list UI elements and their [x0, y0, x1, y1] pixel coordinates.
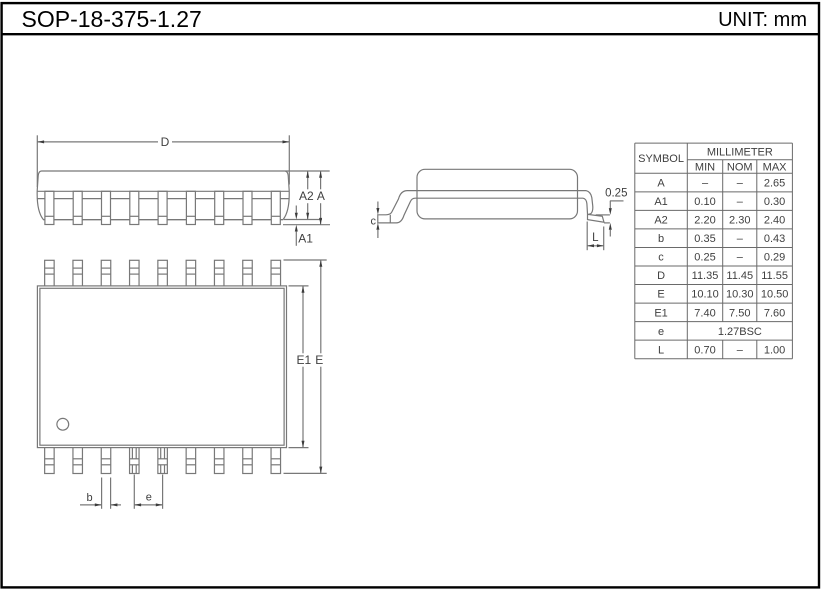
svg-text:b: b	[658, 233, 664, 245]
svg-text:L: L	[592, 232, 599, 244]
svg-text:–: –	[737, 344, 744, 356]
svg-text:c: c	[658, 252, 664, 264]
svg-text:b: b	[86, 492, 92, 504]
svg-text:SOP-18-375-1.27: SOP-18-375-1.27	[22, 6, 202, 32]
svg-text:–: –	[702, 177, 709, 189]
svg-text:1.27BSC: 1.27BSC	[718, 326, 762, 338]
svg-text:UNIT: mm: UNIT: mm	[718, 9, 807, 31]
svg-text:E: E	[315, 353, 323, 367]
svg-text:0.30: 0.30	[764, 196, 785, 208]
svg-text:0.25: 0.25	[694, 252, 715, 264]
svg-text:A1: A1	[654, 196, 667, 208]
svg-text:7.60: 7.60	[764, 307, 785, 319]
svg-text:0.43: 0.43	[764, 233, 785, 245]
svg-text:0.10: 0.10	[694, 196, 715, 208]
svg-text:0.70: 0.70	[694, 344, 715, 356]
svg-text:e: e	[658, 326, 664, 338]
svg-text:10.50: 10.50	[761, 289, 789, 301]
svg-text:c: c	[371, 215, 377, 227]
svg-text:E1: E1	[296, 353, 311, 367]
svg-text:1.00: 1.00	[764, 344, 785, 356]
svg-text:MILLIMETER: MILLIMETER	[707, 146, 773, 158]
svg-text:A2: A2	[299, 189, 314, 203]
svg-text:D: D	[657, 270, 665, 282]
svg-text:10.30: 10.30	[726, 289, 754, 301]
svg-text:11.45: 11.45	[726, 270, 753, 282]
svg-text:MAX: MAX	[763, 161, 788, 173]
svg-text:–: –	[737, 252, 744, 264]
svg-text:MIN: MIN	[695, 161, 715, 173]
svg-text:2.20: 2.20	[694, 215, 715, 227]
svg-text:11.35: 11.35	[692, 270, 719, 282]
svg-text:E1: E1	[654, 307, 667, 319]
svg-text:2.30: 2.30	[729, 215, 750, 227]
svg-text:e: e	[146, 492, 152, 504]
svg-text:A2: A2	[654, 215, 667, 227]
svg-text:A1: A1	[298, 231, 313, 245]
svg-text:–: –	[737, 196, 744, 208]
svg-text:10.10: 10.10	[691, 289, 719, 301]
svg-text:2.65: 2.65	[764, 177, 785, 189]
svg-text:7.50: 7.50	[729, 307, 750, 319]
svg-text:–: –	[737, 233, 744, 245]
svg-text:0.25: 0.25	[605, 188, 627, 200]
svg-text:L: L	[658, 344, 664, 356]
svg-text:0.29: 0.29	[764, 252, 785, 264]
svg-text:SYMBOL: SYMBOL	[638, 153, 684, 165]
svg-text:D: D	[161, 135, 170, 149]
svg-text:11.55: 11.55	[761, 270, 788, 282]
svg-text:E: E	[657, 289, 664, 301]
svg-text:NOM: NOM	[727, 161, 753, 173]
svg-text:7.40: 7.40	[694, 307, 715, 319]
svg-text:–: –	[737, 177, 744, 189]
svg-text:0.35: 0.35	[694, 233, 715, 245]
svg-text:A: A	[317, 189, 325, 203]
svg-text:A: A	[657, 177, 665, 189]
svg-text:2.40: 2.40	[764, 215, 785, 227]
